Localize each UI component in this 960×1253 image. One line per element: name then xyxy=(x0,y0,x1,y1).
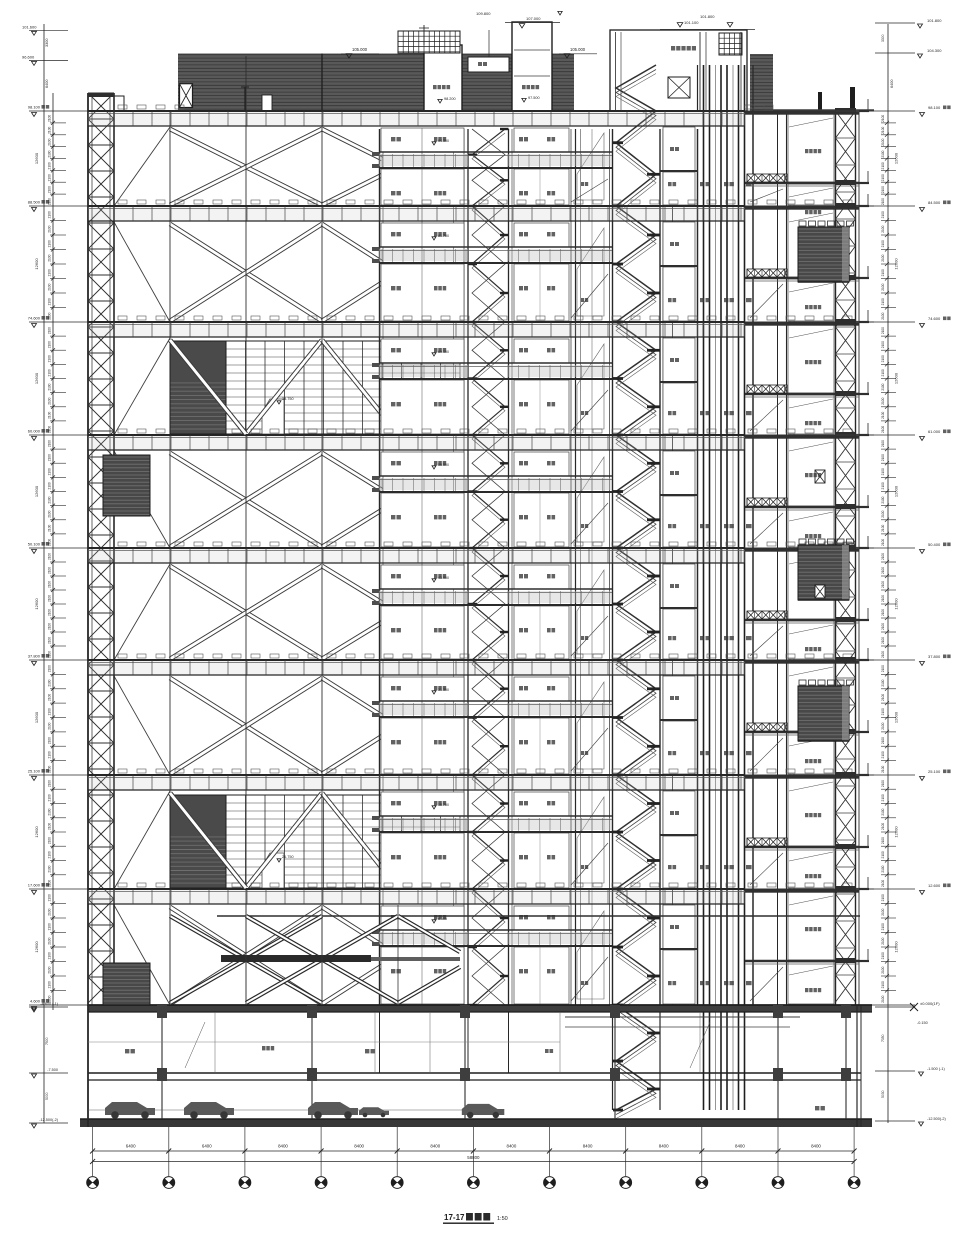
svg-text:2100: 2100 xyxy=(48,837,52,844)
svg-text:17-17: 17-17 xyxy=(444,1213,465,1222)
svg-text:-0.150: -0.150 xyxy=(917,1021,928,1025)
svg-text:-1.500 (-1): -1.500 (-1) xyxy=(927,1067,945,1071)
svg-text:2100: 2100 xyxy=(881,637,885,644)
svg-text:2100: 2100 xyxy=(881,198,885,205)
svg-text:2100: 2100 xyxy=(48,751,52,758)
svg-text:12600: 12600 xyxy=(894,372,899,384)
svg-text:2100: 2100 xyxy=(48,880,52,887)
svg-text:17.600: 17.600 xyxy=(28,883,41,888)
svg-text:2100: 2100 xyxy=(48,186,52,193)
svg-text:37.800: 37.800 xyxy=(928,654,941,659)
svg-text:2100: 2100 xyxy=(48,851,52,858)
svg-text:2100: 2100 xyxy=(48,937,52,944)
svg-text:2100: 2100 xyxy=(48,665,52,672)
svg-text:101.100: 101.100 xyxy=(684,20,699,25)
svg-text:2100: 2100 xyxy=(881,341,885,348)
svg-text:2100: 2100 xyxy=(881,496,885,503)
svg-text:2100: 2100 xyxy=(881,981,885,988)
svg-text:2100: 2100 xyxy=(881,694,885,701)
svg-text:2100: 2100 xyxy=(48,298,52,305)
svg-text:101.600: 101.600 xyxy=(22,24,37,29)
svg-text:12600: 12600 xyxy=(894,485,899,497)
svg-text:2100: 2100 xyxy=(48,766,52,773)
svg-text:2100: 2100 xyxy=(881,312,885,319)
svg-text:2100: 2100 xyxy=(48,369,52,376)
svg-text:2100: 2100 xyxy=(48,865,52,872)
svg-text:12600: 12600 xyxy=(894,826,899,838)
svg-text:2100: 2100 xyxy=(48,198,52,205)
svg-text:2100: 2100 xyxy=(881,525,885,532)
svg-text:3300: 3300 xyxy=(881,34,885,42)
svg-text:2100: 2100 xyxy=(881,595,885,602)
svg-text:2100: 2100 xyxy=(48,553,52,560)
svg-text:98.100: 98.100 xyxy=(928,105,941,110)
svg-text:31.300: 31.300 xyxy=(438,688,449,692)
svg-text:-7.500: -7.500 xyxy=(47,1068,58,1072)
svg-text:50.400: 50.400 xyxy=(928,542,941,547)
svg-text:2100: 2100 xyxy=(48,952,52,959)
svg-text:8400: 8400 xyxy=(735,1144,745,1149)
svg-text:2100: 2100 xyxy=(48,637,52,644)
svg-text:2100: 2100 xyxy=(881,794,885,801)
svg-text:97.500: 97.500 xyxy=(528,96,540,100)
svg-text:105.000: 105.000 xyxy=(352,47,368,52)
svg-text:2100: 2100 xyxy=(48,412,52,419)
svg-text:98.200: 98.200 xyxy=(444,97,456,101)
svg-text:12600: 12600 xyxy=(894,598,899,610)
svg-text:2100: 2100 xyxy=(48,510,52,517)
svg-text:43.900: 43.900 xyxy=(438,576,449,580)
svg-text:2100: 2100 xyxy=(881,708,885,715)
svg-text:74.600: 74.600 xyxy=(928,316,941,321)
svg-text:-12.500(-2): -12.500(-2) xyxy=(927,1117,947,1121)
svg-text:88.500: 88.500 xyxy=(28,200,41,205)
svg-text:8400: 8400 xyxy=(583,1144,593,1149)
svg-text:2100: 2100 xyxy=(48,254,52,261)
svg-text:7350: 7350 xyxy=(881,1034,885,1042)
svg-text:2100: 2100 xyxy=(48,923,52,930)
svg-text:2100: 2100 xyxy=(881,665,885,672)
svg-text:2100: 2100 xyxy=(881,808,885,815)
svg-text:2100: 2100 xyxy=(48,623,52,630)
svg-text:2100: 2100 xyxy=(881,651,885,658)
svg-text:2100: 2100 xyxy=(881,355,885,362)
svg-text:2100: 2100 xyxy=(48,496,52,503)
svg-text:8400: 8400 xyxy=(354,1144,364,1149)
svg-text:18.700: 18.700 xyxy=(438,803,449,807)
svg-text:81.700: 81.700 xyxy=(438,234,449,238)
svg-text:5030: 5030 xyxy=(881,1090,885,1098)
svg-text:2100: 2100 xyxy=(881,609,885,616)
svg-text:12600: 12600 xyxy=(34,372,39,384)
svg-text:2100: 2100 xyxy=(48,383,52,390)
svg-text:2100: 2100 xyxy=(881,468,885,475)
svg-text:61.000: 61.000 xyxy=(928,429,941,434)
svg-text:37.800: 37.800 xyxy=(28,654,41,659)
svg-text:50.100: 50.100 xyxy=(28,542,41,547)
svg-text:2100: 2100 xyxy=(881,150,885,157)
svg-text:2100: 2100 xyxy=(881,880,885,887)
svg-text:2100: 2100 xyxy=(48,355,52,362)
svg-text:4.600: 4.600 xyxy=(30,999,41,1004)
svg-text:5000: 5000 xyxy=(45,1092,49,1100)
svg-text:2100: 2100 xyxy=(48,679,52,686)
svg-text:56.500: 56.500 xyxy=(438,463,449,467)
svg-text:8400: 8400 xyxy=(430,1144,440,1149)
svg-text:2100: 2100 xyxy=(881,908,885,915)
svg-text:3300: 3300 xyxy=(45,39,49,47)
svg-text:107.000: 107.000 xyxy=(526,16,541,21)
svg-text:2100: 2100 xyxy=(48,127,52,134)
svg-text:2100: 2100 xyxy=(48,908,52,915)
svg-text:12600: 12600 xyxy=(894,152,899,164)
svg-text:2100: 2100 xyxy=(48,327,52,334)
svg-text:2100: 2100 xyxy=(881,240,885,247)
svg-text:2100: 2100 xyxy=(48,211,52,218)
svg-text:2100: 2100 xyxy=(881,440,885,447)
svg-text:94.300: 94.300 xyxy=(438,139,449,143)
svg-text:38.750: 38.750 xyxy=(282,397,294,401)
svg-text:96.600: 96.600 xyxy=(22,54,35,59)
svg-text:2100: 2100 xyxy=(881,567,885,574)
svg-text:2100: 2100 xyxy=(881,837,885,844)
svg-text:2100: 2100 xyxy=(881,865,885,872)
svg-text:2100: 2100 xyxy=(881,581,885,588)
svg-text:12600: 12600 xyxy=(894,258,899,270)
svg-text:2100: 2100 xyxy=(881,923,885,930)
svg-text:12600: 12600 xyxy=(34,826,39,838)
svg-text:8400: 8400 xyxy=(811,1144,821,1149)
svg-text:7500: 7500 xyxy=(45,1037,49,1045)
svg-text:2100: 2100 xyxy=(881,851,885,858)
svg-text:8400: 8400 xyxy=(659,1144,669,1149)
svg-text:6400: 6400 xyxy=(202,1144,212,1149)
svg-text:2100: 2100 xyxy=(48,595,52,602)
svg-text:2100: 2100 xyxy=(881,737,885,744)
svg-text:2100: 2100 xyxy=(881,679,885,686)
svg-text:1:50: 1:50 xyxy=(497,1216,508,1222)
svg-text:69.100: 69.100 xyxy=(438,350,449,354)
svg-text:2100: 2100 xyxy=(48,780,52,787)
svg-text:2100: 2100 xyxy=(48,525,52,532)
svg-text:2100: 2100 xyxy=(48,708,52,715)
svg-text:2100: 2100 xyxy=(48,454,52,461)
svg-text:60.000: 60.000 xyxy=(28,429,41,434)
svg-text:2100: 2100 xyxy=(881,539,885,546)
svg-text:2100: 2100 xyxy=(48,808,52,815)
svg-text:2100: 2100 xyxy=(881,482,885,489)
svg-text:2100: 2100 xyxy=(881,186,885,193)
svg-text:2100: 2100 xyxy=(881,269,885,276)
svg-text:12600: 12600 xyxy=(34,152,39,164)
svg-text:109.800: 109.800 xyxy=(476,11,491,16)
svg-text:2100: 2100 xyxy=(881,298,885,305)
svg-text:12600: 12600 xyxy=(894,711,899,723)
svg-text:2100: 2100 xyxy=(48,283,52,290)
svg-text:2100: 2100 xyxy=(48,694,52,701)
svg-text:2100: 2100 xyxy=(48,823,52,830)
svg-text:2100: 2100 xyxy=(881,553,885,560)
svg-text:6400: 6400 xyxy=(45,80,49,88)
svg-text:101.800: 101.800 xyxy=(700,14,715,19)
svg-text:2100: 2100 xyxy=(48,894,52,901)
svg-text:2100: 2100 xyxy=(881,127,885,134)
svg-text:2100: 2100 xyxy=(48,722,52,729)
svg-text:98.100: 98.100 xyxy=(28,105,41,110)
svg-text:2100: 2100 xyxy=(881,138,885,145)
svg-text:2100: 2100 xyxy=(48,426,52,433)
svg-text:2100: 2100 xyxy=(881,937,885,944)
svg-text:2100: 2100 xyxy=(881,211,885,218)
svg-text:2100: 2100 xyxy=(48,567,52,574)
svg-text:2100: 2100 xyxy=(48,581,52,588)
svg-text:8400: 8400 xyxy=(507,1144,517,1149)
svg-text:2100: 2100 xyxy=(881,823,885,830)
svg-text:2100: 2100 xyxy=(48,651,52,658)
svg-text:58800: 58800 xyxy=(467,1155,480,1160)
svg-text:2100: 2100 xyxy=(881,225,885,232)
svg-text:2100: 2100 xyxy=(48,240,52,247)
svg-text:2100: 2100 xyxy=(881,162,885,169)
svg-text:2100: 2100 xyxy=(881,995,885,1002)
svg-text:2100: 2100 xyxy=(881,327,885,334)
svg-text:2100: 2100 xyxy=(881,412,885,419)
svg-text:74.600: 74.600 xyxy=(28,316,41,321)
svg-text:2100: 2100 xyxy=(881,454,885,461)
svg-text:25.100: 25.100 xyxy=(28,769,41,774)
svg-text:2100: 2100 xyxy=(881,751,885,758)
svg-text:6.100: 6.100 xyxy=(438,917,447,921)
svg-text:-4.600 (-1): -4.600 (-1) xyxy=(40,1002,58,1006)
svg-text:12600: 12600 xyxy=(894,941,899,953)
svg-text:2100: 2100 xyxy=(48,269,52,276)
svg-text:2100: 2100 xyxy=(48,981,52,988)
svg-text:104.300: 104.300 xyxy=(927,48,942,53)
svg-text:2100: 2100 xyxy=(48,482,52,489)
svg-text:12.600: 12.600 xyxy=(928,883,941,888)
svg-text:2100: 2100 xyxy=(881,397,885,404)
svg-text:12600: 12600 xyxy=(34,711,39,723)
svg-text:2100: 2100 xyxy=(881,966,885,973)
svg-text:2100: 2100 xyxy=(881,174,885,181)
svg-text:2100: 2100 xyxy=(881,894,885,901)
svg-text:2100: 2100 xyxy=(48,312,52,319)
svg-text:12600: 12600 xyxy=(34,485,39,497)
svg-text:12600: 12600 xyxy=(34,598,39,610)
svg-text:2100: 2100 xyxy=(48,794,52,801)
svg-text:2100: 2100 xyxy=(48,138,52,145)
svg-text:2100: 2100 xyxy=(48,150,52,157)
svg-text:2100: 2100 xyxy=(881,780,885,787)
svg-text:2100: 2100 xyxy=(881,952,885,959)
svg-text:2100: 2100 xyxy=(881,254,885,261)
svg-text:2100: 2100 xyxy=(48,162,52,169)
svg-text:2100: 2100 xyxy=(881,722,885,729)
svg-text:2100: 2100 xyxy=(881,283,885,290)
svg-text:2100: 2100 xyxy=(881,510,885,517)
svg-text:84.500: 84.500 xyxy=(928,200,941,205)
svg-text:2100: 2100 xyxy=(48,468,52,475)
svg-text:2100: 2100 xyxy=(881,383,885,390)
svg-text:2100: 2100 xyxy=(881,766,885,773)
svg-text:2100: 2100 xyxy=(48,737,52,744)
svg-text:2100: 2100 xyxy=(48,174,52,181)
svg-text:2100: 2100 xyxy=(48,609,52,616)
svg-text:2100: 2100 xyxy=(881,623,885,630)
svg-text:12600: 12600 xyxy=(34,941,39,953)
svg-text:2100: 2100 xyxy=(48,440,52,447)
svg-text:6400: 6400 xyxy=(890,80,894,88)
svg-text:2100: 2100 xyxy=(48,225,52,232)
svg-text:2100: 2100 xyxy=(881,426,885,433)
svg-text:12600: 12600 xyxy=(34,258,39,270)
svg-text:-12.500(-2): -12.500(-2) xyxy=(39,1118,59,1122)
svg-text:2100: 2100 xyxy=(881,369,885,376)
svg-text:2100: 2100 xyxy=(881,115,885,122)
svg-text:2100: 2100 xyxy=(48,341,52,348)
svg-text:2100: 2100 xyxy=(48,397,52,404)
svg-text:105.000: 105.000 xyxy=(570,47,586,52)
svg-text:8400: 8400 xyxy=(278,1144,288,1149)
svg-text:±0.000(1F): ±0.000(1F) xyxy=(920,1001,940,1006)
svg-text:101.800: 101.800 xyxy=(927,18,942,23)
svg-text:6400: 6400 xyxy=(126,1144,136,1149)
svg-text:25.100: 25.100 xyxy=(928,769,941,774)
svg-text:2100: 2100 xyxy=(48,966,52,973)
svg-text:2100: 2100 xyxy=(48,539,52,546)
svg-text:2100: 2100 xyxy=(48,115,52,122)
svg-text:26.750: 26.750 xyxy=(282,855,294,859)
